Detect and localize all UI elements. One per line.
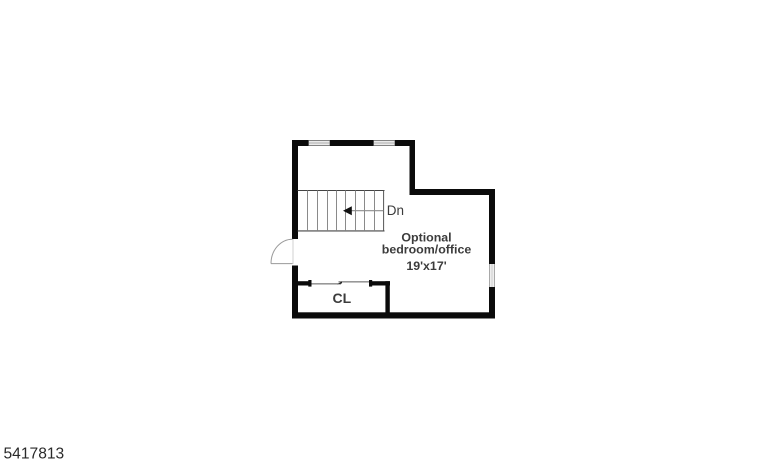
svg-text:19'x17': 19'x17': [406, 259, 446, 273]
svg-text:5417813: 5417813: [4, 446, 65, 463]
svg-text:bedroom/office: bedroom/office: [382, 243, 472, 257]
svg-text:Dn: Dn: [387, 203, 404, 218]
svg-text:CL: CL: [332, 290, 351, 306]
